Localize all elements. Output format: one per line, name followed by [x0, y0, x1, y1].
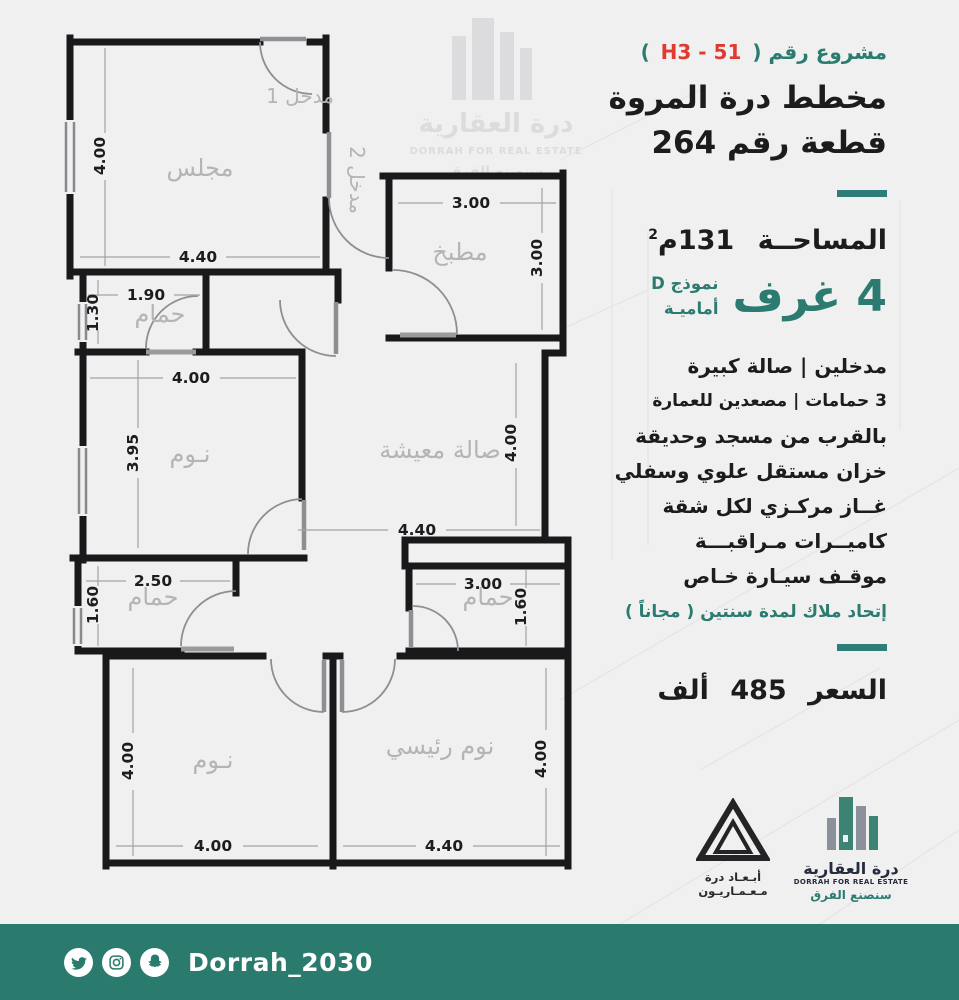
area-label: المساحــة — [758, 225, 887, 256]
room-kitchen: مطبخ — [432, 238, 487, 266]
info-panel: مشروع رقم ( H3 - 51 ) مخطط درة المروة قط… — [595, 40, 887, 706]
watermark-logo: درة العقارية DORRAH FOR REAL ESTATE سنصن… — [409, 18, 582, 180]
features-list: مدخلين | صالة كبيرة 3 حمامات | مصعدين لل… — [595, 349, 887, 594]
room-bedroom-2: نـوم — [193, 746, 234, 774]
watermark-arabic: درة العقارية — [418, 109, 573, 139]
model-info: نموذج D أماميـة — [651, 272, 718, 322]
svg-text:4.00: 4.00 — [194, 837, 232, 855]
area-line: المساحــة 131م2 — [595, 225, 887, 256]
project-code: H3 - 51 — [661, 40, 742, 64]
entrance-2-label: مدخل 2 — [345, 146, 369, 214]
feature-item: كاميــرات مـراقبـــة — [595, 524, 887, 559]
svg-text:1.30: 1.30 — [84, 294, 102, 332]
buildings-logo-icon — [822, 791, 880, 853]
svg-text:4.40: 4.40 — [179, 248, 217, 266]
plan-title: مخطط درة المروة — [595, 76, 887, 121]
feature-item: خزان مستقل علوي وسفلي — [595, 454, 887, 489]
hoa-note: إتحاد ملاك لمدة سنتين ( مجاناً ) — [595, 602, 887, 622]
watermark-english: DORRAH FOR REAL ESTATE — [409, 146, 582, 157]
feature-item: بالقرب من مسجد وحديقة — [595, 419, 887, 454]
rooms-count: 4 غرف — [733, 275, 887, 319]
twitter-icon[interactable] — [64, 948, 93, 977]
room-bath-3: حمام — [463, 583, 514, 611]
floor-plan: درة العقارية DORRAH FOR REAL ESTATE سنصن… — [48, 8, 640, 920]
room-bedroom-1: نـوم — [170, 440, 211, 468]
price-label: السعر — [808, 675, 887, 706]
footer-bar: Dorrah_2030 — [0, 924, 959, 1000]
area-value: 131م2 — [648, 225, 734, 256]
svg-text:1.60: 1.60 — [84, 586, 102, 624]
instagram-icon[interactable] — [102, 948, 131, 977]
svg-text:4.00: 4.00 — [91, 137, 109, 175]
room-bath-2: حمام — [128, 583, 179, 611]
room-bath-1: حمام — [135, 300, 186, 328]
snapchat-icon[interactable] — [140, 948, 169, 977]
dorrah-logo: درة العقارية DORRAH FOR REAL ESTATE سنصن… — [793, 791, 909, 902]
social-handle[interactable]: Dorrah_2030 — [188, 948, 373, 977]
price-value: 485 — [730, 675, 786, 706]
project-number-line: مشروع رقم ( H3 - 51 ) — [595, 40, 887, 64]
room-labels: مجلس مدخل 1 مدخل 2 مطبخ حمام نـوم صالة م… — [128, 84, 514, 774]
rooms-model-row: 4 غرف نموذج D أماميـة — [595, 272, 887, 322]
room-majlis: مجلس — [167, 154, 234, 182]
door-leaf — [260, 39, 411, 712]
price-unit: ألف — [657, 675, 709, 706]
feature-item: موقـف سيـارة خـاص — [595, 559, 887, 594]
feature-item: غــاز مركـزي لكل شقة — [595, 489, 887, 524]
svg-text:4.00: 4.00 — [502, 424, 520, 462]
feature-item: مدخلين | صالة كبيرة — [595, 349, 887, 384]
svg-text:4.40: 4.40 — [398, 521, 436, 539]
svg-text:3.00: 3.00 — [452, 194, 490, 212]
feature-item: 3 حمامات | مصعدين للعمارة — [595, 384, 887, 419]
divider — [837, 644, 887, 651]
price-line: السعر 485 ألف — [595, 675, 887, 706]
room-master: نوم رئيسي — [386, 732, 495, 760]
svg-text:4.00: 4.00 — [532, 740, 550, 778]
svg-text:1.60: 1.60 — [512, 588, 530, 626]
svg-text:3.00: 3.00 — [528, 239, 546, 277]
abaad-logo: أبـعـاد درة مـعـمـاريـون — [688, 798, 778, 898]
svg-text:4.40: 4.40 — [425, 837, 463, 855]
svg-text:4.00: 4.00 — [172, 369, 210, 387]
svg-text:4.00: 4.00 — [119, 742, 137, 780]
svg-text:3.95: 3.95 — [124, 434, 142, 472]
room-living: صالة معيشة — [379, 436, 500, 464]
project-label: مشروع رقم ( — [752, 40, 887, 64]
plot-number: قطعة رقم 264 — [595, 121, 887, 166]
divider — [837, 190, 887, 197]
entrance-1-label: مدخل 1 — [266, 84, 334, 108]
triangle-logo-icon — [696, 798, 770, 862]
